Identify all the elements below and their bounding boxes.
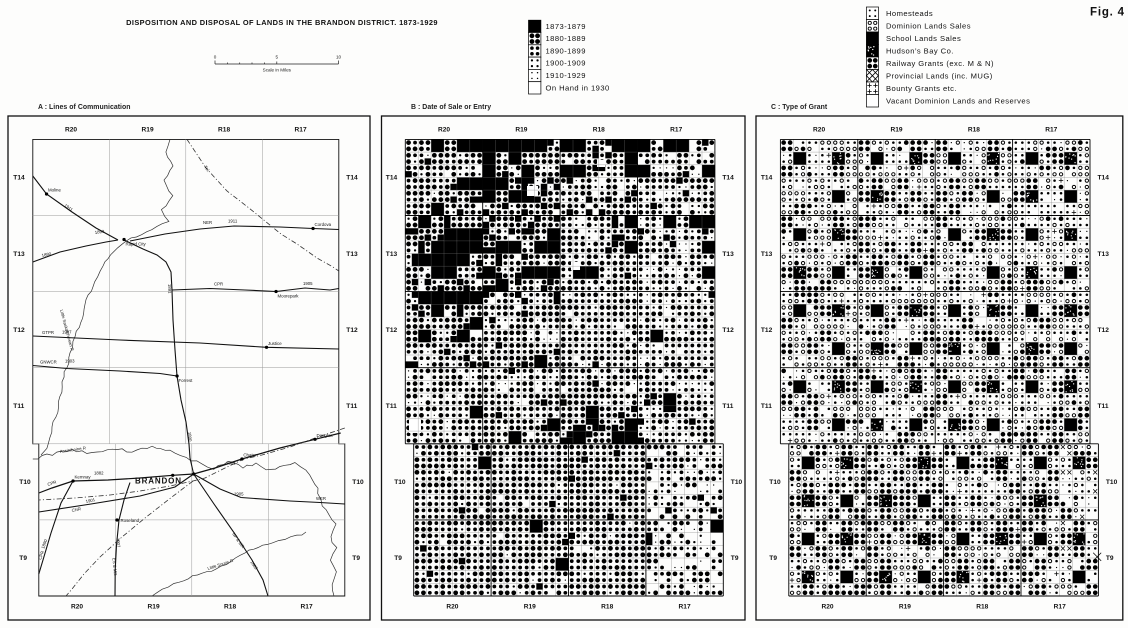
svg-text:R19: R19 (515, 127, 527, 134)
svg-text:Douglas: Douglas (317, 433, 334, 438)
svg-text:R17: R17 (301, 604, 313, 611)
svg-text:BRANDON: BRANDON (135, 477, 182, 486)
svg-text:T12: T12 (346, 327, 358, 334)
svg-text:T10: T10 (731, 479, 743, 486)
svg-text:R19: R19 (142, 127, 154, 134)
svg-text:On Hand in 1930: On Hand in 1930 (546, 83, 610, 92)
svg-text:NER: NER (203, 220, 212, 225)
svg-text:T11: T11 (386, 403, 397, 410)
svg-text:T10: T10 (19, 479, 31, 486)
svg-text:R18: R18 (601, 604, 613, 611)
svg-text:R19: R19 (148, 604, 160, 611)
svg-text:Dominion Lands Sales: Dominion Lands Sales (886, 21, 971, 30)
svg-text:R17: R17 (295, 127, 307, 134)
svg-text:R20: R20 (813, 127, 825, 134)
svg-text:R17: R17 (1045, 127, 1057, 134)
svg-text:T12: T12 (761, 327, 773, 334)
svg-text:Moorepark: Moorepark (278, 294, 300, 299)
svg-text:R20: R20 (438, 127, 450, 134)
svg-text:Roseland: Roseland (121, 518, 140, 523)
svg-text:T9: T9 (352, 555, 360, 562)
svg-text:R19: R19 (890, 127, 902, 134)
svg-text:B : Date of Sale or Entry: B : Date of Sale or Entry (411, 104, 491, 111)
svg-text:T11: T11 (761, 403, 772, 410)
svg-text:1890-1899: 1890-1899 (546, 46, 586, 55)
svg-text:T13: T13 (722, 251, 734, 258)
svg-text:T12: T12 (1098, 327, 1110, 334)
svg-text:R20: R20 (71, 604, 83, 611)
svg-text:R17: R17 (679, 604, 691, 611)
svg-text:Rapid City: Rapid City (126, 242, 147, 247)
svg-text:R18: R18 (218, 127, 230, 134)
svg-text:1880-1889: 1880-1889 (546, 34, 586, 43)
svg-text:T10: T10 (352, 479, 364, 486)
svg-text:Railway Grants (exc. M & N): Railway Grants (exc. M & N) (886, 59, 994, 68)
svg-text:Homesteads: Homesteads (886, 9, 933, 18)
svg-text:R18: R18 (593, 127, 605, 134)
svg-text:T12: T12 (722, 327, 734, 334)
svg-text:1910-1929: 1910-1929 (546, 71, 586, 80)
svg-text:T11: T11 (13, 403, 24, 410)
svg-text:T9: T9 (19, 555, 27, 562)
svg-text:R19: R19 (899, 604, 911, 611)
svg-text:R20: R20 (65, 127, 77, 134)
svg-text:Cordova: Cordova (315, 222, 332, 227)
svg-text:1905: 1905 (234, 492, 244, 497)
svg-text:1903: 1903 (65, 359, 75, 364)
svg-text:Provincial Lands (inc. MUG): Provincial Lands (inc. MUG) (886, 71, 993, 80)
svg-text:R17: R17 (1054, 604, 1066, 611)
svg-text:1900-1909: 1900-1909 (546, 59, 586, 68)
svg-text:C : Type of Grant: C : Type of Grant (771, 104, 828, 111)
svg-text:Hudson’s Bay Co.: Hudson’s Bay Co. (886, 46, 954, 55)
svg-text:R20: R20 (446, 604, 458, 611)
svg-text:T13: T13 (761, 251, 773, 258)
svg-text:T10: T10 (394, 479, 406, 486)
svg-text:R19: R19 (524, 604, 536, 611)
svg-text:T14: T14 (13, 175, 25, 182)
svg-text:Chater: Chater (243, 453, 257, 458)
svg-text:Justice: Justice (268, 341, 282, 346)
svg-text:DISPOSITION AND DISPOSAL OF LA: DISPOSITION AND DISPOSAL OF LANDS IN THE… (126, 18, 438, 27)
svg-text:GTPR: GTPR (42, 330, 54, 335)
svg-text:1890: 1890 (187, 432, 193, 443)
svg-text:R17: R17 (670, 127, 682, 134)
svg-text:T14: T14 (1098, 175, 1110, 182)
svg-text:10: 10 (336, 55, 342, 60)
svg-text:5: 5 (276, 55, 279, 60)
svg-text:Fig. 4: Fig. 4 (1090, 7, 1125, 19)
svg-text:R20: R20 (821, 604, 833, 611)
svg-text:T14: T14 (346, 175, 358, 182)
svg-text:1891: 1891 (167, 284, 172, 294)
svg-text:0: 0 (214, 55, 217, 60)
svg-text:GNWCR: GNWCR (40, 360, 57, 365)
svg-text:T9: T9 (394, 555, 402, 562)
svg-text:1905: 1905 (303, 281, 313, 286)
svg-text:R18: R18 (224, 604, 236, 611)
svg-text:Vacant Dominion Lands and Rese: Vacant Dominion Lands and Reserves (886, 96, 1030, 105)
svg-text:T11: T11 (1098, 403, 1109, 410)
svg-text:1882: 1882 (94, 471, 104, 476)
svg-text:Forrest: Forrest (179, 378, 194, 383)
svg-text:T14: T14 (722, 175, 734, 182)
svg-text:1907: 1907 (116, 538, 122, 549)
svg-text:T13: T13 (346, 251, 358, 258)
svg-text:CPR: CPR (214, 282, 223, 287)
svg-text:WER: WER (316, 496, 326, 501)
svg-text:1881: 1881 (226, 461, 236, 466)
svg-text:T13: T13 (1098, 251, 1110, 258)
svg-text:T11: T11 (346, 403, 357, 410)
svg-text:T12: T12 (386, 327, 398, 334)
svg-text:T14: T14 (761, 175, 773, 182)
svg-text:T9: T9 (769, 555, 777, 562)
svg-text:T9: T9 (1106, 555, 1114, 562)
svg-text:Scale in Miles: Scale in Miles (263, 68, 292, 73)
svg-text:R18: R18 (976, 604, 988, 611)
svg-text:1911: 1911 (228, 219, 238, 224)
svg-text:School Lands Sales: School Lands Sales (886, 34, 961, 43)
svg-text:T13: T13 (13, 251, 25, 258)
svg-text:Moline: Moline (48, 188, 61, 193)
svg-text:R18: R18 (968, 127, 980, 134)
svg-text:T12: T12 (13, 327, 25, 334)
svg-text:T10: T10 (769, 479, 781, 486)
svg-text:T14: T14 (386, 175, 398, 182)
svg-text:A : Lines of Communication: A : Lines of Communication (38, 104, 131, 111)
svg-text:1873-1879: 1873-1879 (546, 22, 586, 31)
svg-text:T9: T9 (731, 555, 739, 562)
svg-text:Kemnay: Kemnay (75, 475, 92, 480)
svg-text:T13: T13 (386, 251, 398, 258)
svg-text:Bounty Grants etc.: Bounty Grants etc. (886, 84, 957, 93)
svg-text:T10: T10 (1106, 479, 1118, 486)
svg-text:T11: T11 (722, 403, 733, 410)
